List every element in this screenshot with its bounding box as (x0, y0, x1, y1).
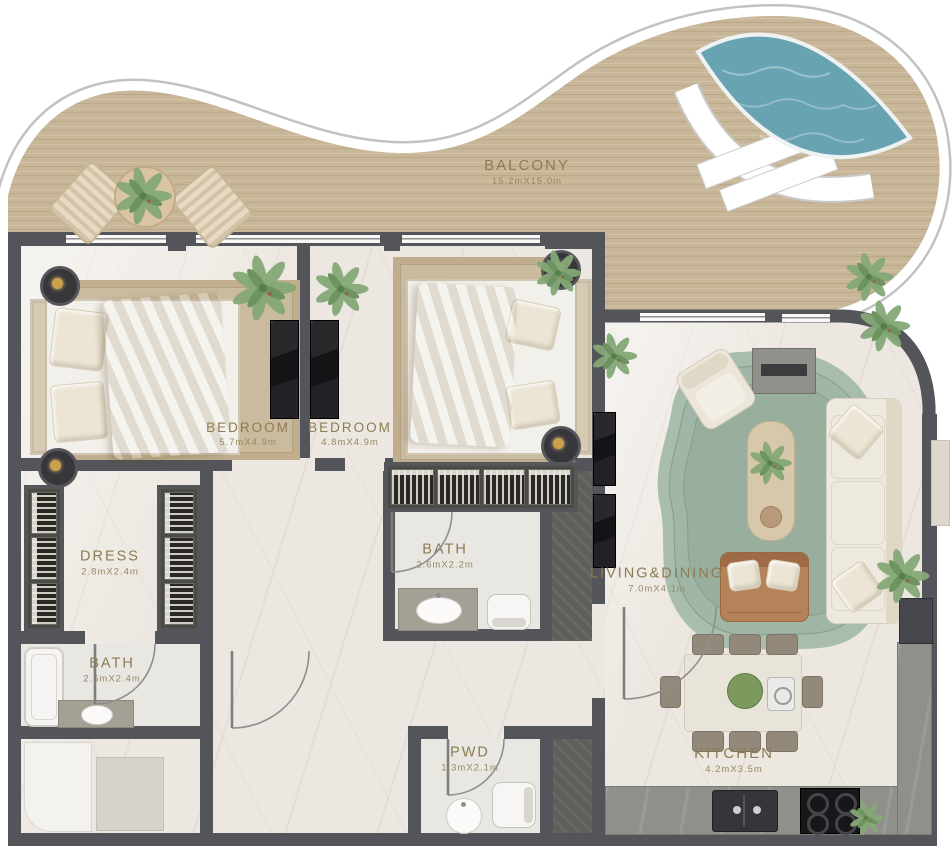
room-label-bedroom-1: BEDROOM 5.7mX4.9m (206, 419, 290, 449)
wall-pwd-left (408, 726, 421, 833)
nightstand-lamp (38, 448, 78, 488)
bed-pillow (505, 379, 561, 430)
dining-chair (802, 676, 823, 708)
sink-basin-dot (733, 806, 741, 814)
sofa (826, 398, 902, 624)
loveseat (720, 552, 809, 622)
closet-cell (437, 469, 480, 505)
loveseat-pillow (765, 559, 801, 593)
room-label-kitchen: KITCHEN 4.2mX3.5m (694, 744, 774, 776)
service-shaft (553, 739, 592, 833)
plant-icon (845, 252, 894, 302)
fridge (899, 598, 933, 644)
pool-water (698, 35, 910, 158)
bath1-vanity (58, 700, 134, 728)
closet-cell (31, 583, 57, 625)
sink-basin-dot (753, 806, 761, 814)
closet-cell (483, 469, 526, 505)
pool-step (719, 148, 837, 212)
bedroom1-wardrobe (270, 320, 299, 419)
loveseat-pillow (726, 559, 762, 592)
tub-inner (31, 654, 57, 720)
burner (807, 813, 829, 835)
wall-dress-hall (200, 471, 213, 631)
nightstand-lamp (40, 266, 80, 306)
wall-hall-utility (200, 739, 213, 833)
dress-closet-left (24, 485, 64, 632)
pwd-sink (446, 798, 482, 834)
closet-cell (391, 469, 434, 505)
room-label-bedroom-2: BEDROOM 4.8mX4.9m (308, 419, 392, 449)
bed-blanket (410, 282, 518, 447)
wall-under-bedroom2-a (315, 458, 345, 471)
pool (686, 35, 910, 216)
room-label-bath-1: BATH 2.5mX2.4m (83, 654, 141, 685)
bath2-sink (416, 597, 462, 624)
wall-pillar (545, 232, 603, 249)
sofa-cushion (831, 481, 885, 545)
dining-table (684, 654, 802, 732)
table-decor (760, 506, 782, 528)
utility-mat (96, 757, 164, 831)
room-label-living-dining: LIVING&DINING 7.0mX4.1m (590, 564, 724, 595)
toilet-tank (492, 618, 526, 627)
seat-seam (727, 612, 802, 613)
nightstand-lamp (541, 426, 581, 466)
wall-pwd-right (540, 726, 553, 833)
closet-cell (31, 537, 57, 579)
living-feature-panel (593, 412, 616, 486)
floor-plan: BALCONY 15.2mX15.0m BEDROOM 5.7mX4.9m BE… (0, 0, 952, 852)
bed-pillow (49, 307, 110, 372)
dining-centerpiece (727, 673, 763, 709)
burner (807, 793, 829, 815)
closet-cell (528, 469, 571, 505)
bed-headboard (575, 281, 590, 453)
dining-appliance (767, 677, 795, 711)
pwd-toilet (492, 782, 536, 828)
tv-console (752, 348, 816, 394)
room-label-bath-2: BATH 2.6mX2.2m (416, 540, 474, 571)
wall-left (8, 232, 21, 846)
bath1-sink (81, 705, 113, 725)
dining-chair (729, 634, 761, 655)
sofa-backrest (886, 399, 901, 623)
wall-pwd-top-b (504, 726, 605, 739)
wall-bath1-hall (200, 631, 213, 739)
burner (835, 793, 857, 815)
bedroom2-wardrobe (310, 320, 339, 419)
room-label-dress: DRESS 2.8mX2.4m (80, 547, 140, 578)
ac-ledge (931, 440, 950, 526)
dress-closet-right (157, 485, 201, 632)
dining-chair (766, 634, 798, 655)
room-label-pwd: PWD 1.3mX2.1m (441, 743, 499, 774)
toilet-tank (524, 787, 533, 823)
balcony-table (114, 166, 176, 228)
sink-divider (743, 795, 745, 827)
tv (761, 364, 807, 376)
closet-cell (164, 583, 194, 625)
bed-headboard (32, 301, 47, 453)
nightstand-lamp (541, 250, 581, 290)
wall-pillar (384, 232, 400, 251)
window (782, 314, 830, 322)
bath2-toilet (487, 594, 531, 630)
closet-cell (164, 492, 194, 534)
pool-step (697, 117, 830, 189)
wall-pwd-top-a (408, 726, 448, 739)
kitchen-counter-side (897, 642, 932, 835)
window (402, 235, 540, 243)
room-label-balcony: BALCONY 15.2mX15.0m (484, 156, 570, 188)
wall-divider-lower (592, 698, 605, 833)
wall-pillar (168, 232, 186, 251)
dining-chair (692, 634, 724, 655)
dining-chair (660, 676, 681, 708)
cooktop (800, 788, 860, 834)
kitchen-sink (712, 790, 778, 832)
closet-cell (31, 492, 57, 534)
bed-pillow (50, 381, 109, 443)
bath2-vanity (398, 588, 478, 631)
closet-cell (164, 537, 194, 579)
wall-dress-bath1-a (21, 631, 85, 644)
burner (835, 813, 857, 835)
coffee-table (747, 421, 795, 541)
faucet (436, 593, 441, 598)
appliance-dial (774, 687, 792, 705)
faucet (461, 802, 466, 807)
utility-shower (24, 742, 92, 832)
window (640, 313, 765, 321)
living-feature-panel (593, 494, 616, 568)
hall-closet-row (384, 462, 578, 512)
